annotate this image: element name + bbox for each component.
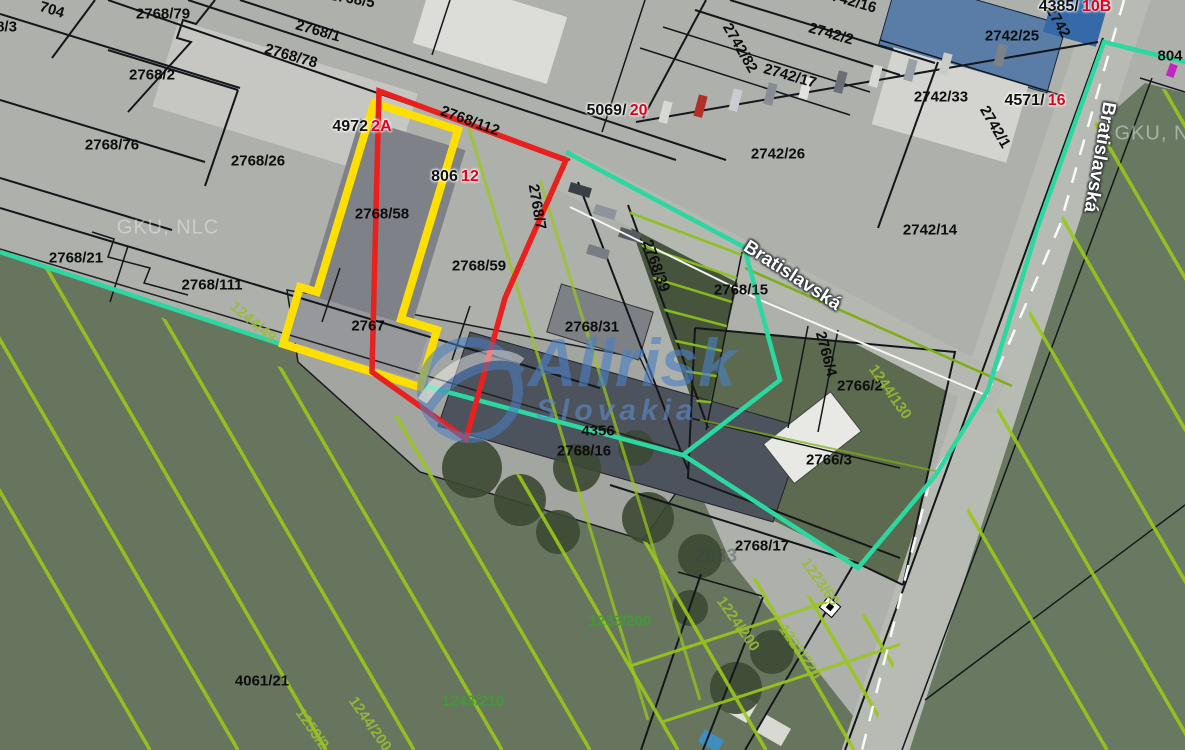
parcel-label: 704 — [38, 0, 67, 22]
parcel-label: 2768/1 — [294, 17, 343, 46]
parcel-label: 2766/3 — [806, 452, 852, 469]
parcel-label-prefix: 806 — [431, 168, 458, 185]
street-label: Bratislavská — [739, 236, 845, 315]
allrisk-watermark-subtitle: Slovakia — [536, 394, 698, 428]
parcel-label: 2742/25 — [985, 28, 1039, 45]
parcel-label: 1223/60 — [797, 555, 842, 609]
parcel-label: 2768/79 — [136, 6, 190, 23]
gku-watermark-left: GKU, NLC — [117, 217, 219, 240]
street-label: Bratislavská — [1078, 100, 1119, 214]
parcel-label: 2768/2 — [129, 67, 175, 84]
parcel-label: 1253/2 — [292, 705, 332, 750]
parcel-label: 2742/26 — [751, 146, 805, 163]
parcel-label: 2767 — [351, 318, 384, 335]
allrisk-watermark: Allrisk Slovakia — [400, 318, 760, 458]
parcel-label-highlighted: 806 12 — [431, 168, 479, 186]
parcel-label: 1223/220 — [775, 621, 825, 682]
parcel-label: 2768/58 — [355, 206, 409, 223]
parcel-label: 4061/21 — [235, 673, 289, 690]
parcel-label: 2768/39 — [639, 238, 674, 295]
parcel-label: 2768/78 — [263, 40, 320, 71]
parcel-label-prefix: 4972 — [332, 118, 368, 135]
parcel-label-highlighted: 4571/ 16 — [1004, 92, 1065, 110]
parcel-label: 1244/200 — [345, 693, 395, 750]
parcel-label-red-suffix: 16 — [1045, 92, 1066, 109]
allrisk-watermark-title: Allrisk — [528, 324, 736, 402]
parcel-label-prefix: 4385/ — [1039, 0, 1079, 15]
parcel-label: 2768/76 — [85, 137, 139, 154]
parcel-label: 2033 — [695, 546, 737, 568]
parcel-label: 1244/49 — [227, 298, 279, 346]
parcel-label: 2768/26 — [231, 153, 285, 170]
gku-watermark-right: GKU, NL — [1114, 123, 1185, 146]
parcel-label: 2766/4 — [812, 330, 840, 379]
parcel-label: 2742/33 — [914, 89, 968, 106]
parcel-label: 1243/210 — [442, 693, 505, 710]
parcel-label-red-suffix: 20 — [627, 102, 648, 119]
parcel-label-red-suffix: 10B — [1079, 0, 1112, 15]
parcel-label: 2768/59 — [452, 258, 506, 275]
parcel-label: 2768/21 — [49, 250, 103, 267]
parcel-label: 2768/112 — [438, 102, 502, 139]
cadastral-map-viewport[interactable]: 7042768/32768/792768/52768/12768/782768/… — [0, 0, 1185, 750]
parcel-label-prefix: 4571/ — [1004, 92, 1044, 109]
parcel-label: 2768/111 — [182, 277, 243, 294]
parcel-label: 2768/3 — [0, 19, 17, 36]
parcel-label: 804 — [1157, 48, 1182, 65]
parcel-label: 2742/2 — [807, 20, 856, 49]
parcel-label: 2768/5 — [328, 0, 376, 11]
parcel-label: 2768/7 — [525, 183, 550, 231]
parcel-label-prefix: 5069/ — [586, 102, 626, 119]
parcel-label: 1233/200 — [589, 613, 652, 630]
parcel-label: 2768/15 — [714, 282, 768, 299]
parcel-label-highlighted: 4385/ 10B — [1039, 0, 1112, 16]
parcel-label: 2768/17 — [735, 538, 789, 555]
parcel-label: 2742/1 — [976, 103, 1014, 151]
parcel-label: 1224/200 — [713, 593, 763, 654]
parcel-label-highlighted: 5069/ 20 — [586, 102, 647, 120]
parcel-label-red-suffix: 12 — [458, 168, 479, 185]
parcel-label-highlighted: 4972 2A — [332, 118, 391, 136]
parcel-label: 2742/16 — [822, 0, 879, 17]
parcel-label: 2742/82 — [719, 20, 761, 75]
parcel-label-red-suffix: 2A — [368, 118, 392, 135]
parcel-label: 2742/17 — [762, 60, 819, 91]
parcel-label: 2742/14 — [903, 222, 957, 239]
